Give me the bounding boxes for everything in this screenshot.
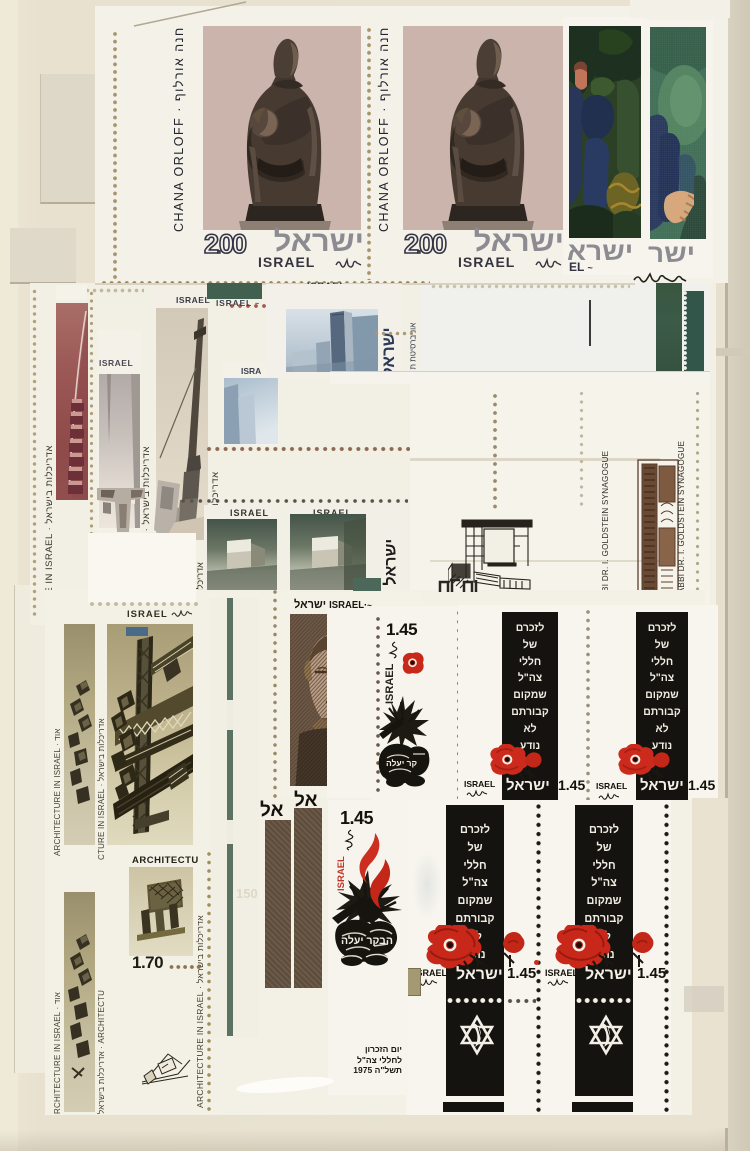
svg-text:קר יעלה: קר יעלה bbox=[386, 758, 418, 768]
svg-text:הבקר יעלה: הבקר יעלה bbox=[341, 935, 393, 947]
